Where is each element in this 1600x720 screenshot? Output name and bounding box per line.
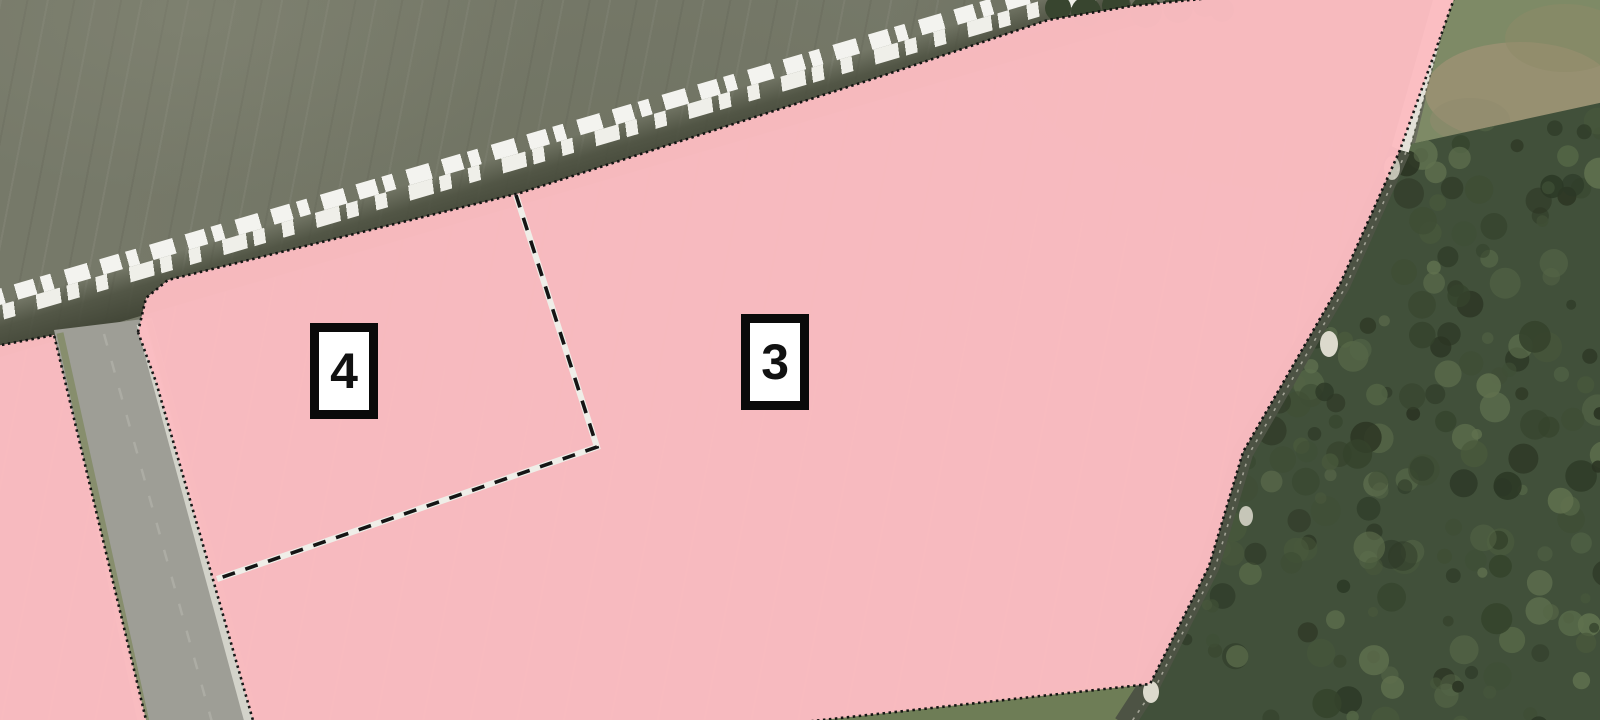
zone-marker-4: 4: [310, 323, 378, 419]
map-canvas: 34: [0, 0, 1600, 720]
zone-marker-3: 3: [741, 314, 809, 410]
